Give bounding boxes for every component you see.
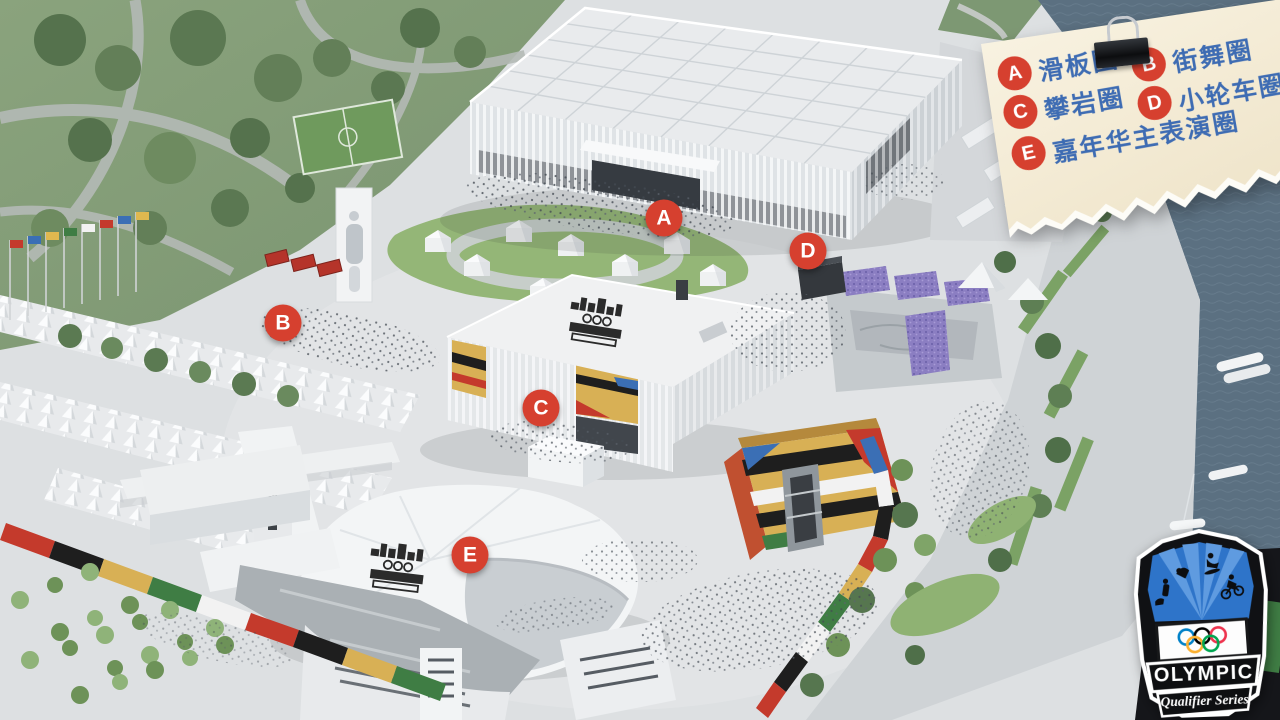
marker-letter: D: [800, 239, 815, 263]
map-marker-e[interactable]: E: [452, 537, 489, 574]
map-marker-d[interactable]: D: [790, 233, 827, 270]
map-marker-c[interactable]: C: [523, 390, 560, 427]
logo-rings-box: [1156, 619, 1248, 661]
marker-letter: A: [656, 206, 671, 230]
logo-title: OLYMPIC: [1154, 661, 1254, 686]
marker-letter: C: [533, 396, 548, 420]
climbing-tower: [336, 188, 372, 302]
map-marker-a[interactable]: A: [646, 200, 683, 237]
legend-badge-e: E: [1008, 133, 1049, 174]
map-marker-b[interactable]: B: [265, 305, 302, 342]
venue-map-screenshot: A B C D E A 滑板圈 B 街舞圈 C 攀岩圈 D 小轮车圈: [0, 0, 1280, 720]
marker-letter: B: [275, 311, 290, 335]
legend-badge-a: A: [994, 53, 1035, 94]
marker-letter: E: [463, 543, 477, 567]
olympic-qualifier-series-logo: OLYMPIC Qualifier Series: [1123, 525, 1280, 720]
elevator-frame: [782, 464, 824, 552]
legend-badge-c: C: [1000, 92, 1041, 133]
logo-subtitle: Qualifier Series: [1160, 691, 1249, 709]
logo-badge: OLYMPIC Qualifier Series: [1123, 525, 1280, 720]
